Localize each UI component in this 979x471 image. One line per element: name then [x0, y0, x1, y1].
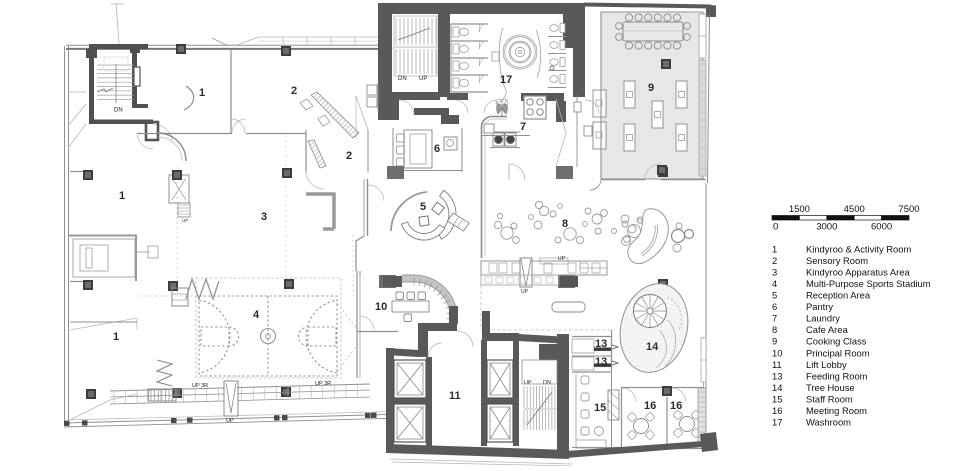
- svg-text:UP: UP: [521, 289, 529, 295]
- svg-text:Pantry: Pantry: [806, 301, 833, 312]
- svg-text:7500: 7500: [898, 204, 919, 215]
- svg-text:Lift Lobby: Lift Lobby: [806, 359, 847, 370]
- svg-text:DN: DN: [543, 380, 551, 386]
- svg-text:UP 3R: UP 3R: [192, 383, 208, 389]
- svg-text:8: 8: [772, 324, 777, 335]
- svg-text:15: 15: [594, 402, 606, 414]
- svg-text:DN: DN: [398, 76, 407, 82]
- svg-text:Principal Room: Principal Room: [806, 347, 870, 358]
- svg-text:DN: DN: [114, 108, 123, 114]
- svg-text:5: 5: [772, 290, 777, 301]
- svg-text:0: 0: [773, 222, 778, 233]
- svg-text:14: 14: [772, 382, 782, 393]
- svg-text:3: 3: [772, 267, 777, 278]
- svg-text:Feeding Room: Feeding Room: [806, 370, 868, 381]
- svg-text:3000: 3000: [816, 222, 837, 233]
- svg-text:9: 9: [648, 82, 654, 94]
- svg-text:16: 16: [772, 405, 782, 416]
- svg-text:10: 10: [772, 347, 782, 358]
- svg-text:16: 16: [644, 400, 656, 412]
- svg-text:16: 16: [670, 400, 682, 412]
- svg-text:6000: 6000: [871, 222, 892, 233]
- svg-text:14: 14: [646, 341, 659, 353]
- svg-text:UP: UP: [558, 256, 566, 262]
- svg-text:4: 4: [253, 309, 260, 321]
- svg-text:11: 11: [772, 359, 782, 370]
- svg-text:Staff Room: Staff Room: [806, 393, 853, 404]
- svg-text:2: 2: [772, 255, 777, 266]
- svg-text:1: 1: [119, 190, 125, 202]
- svg-text:Kindyroo Apparatus Area: Kindyroo Apparatus Area: [806, 267, 910, 278]
- svg-text:Sensory Room: Sensory Room: [806, 255, 868, 266]
- svg-text:10: 10: [375, 301, 387, 313]
- svg-text:UP: UP: [524, 380, 532, 386]
- svg-text:6: 6: [772, 301, 777, 312]
- svg-text:9: 9: [772, 336, 777, 347]
- svg-text:1500: 1500: [789, 204, 810, 215]
- svg-text:8: 8: [562, 218, 568, 230]
- svg-text:5: 5: [420, 201, 426, 213]
- svg-text:Cooking Class: Cooking Class: [806, 336, 867, 347]
- svg-text:Laundry: Laundry: [806, 313, 840, 324]
- svg-text:UP: UP: [226, 418, 234, 424]
- svg-text:2: 2: [346, 150, 352, 162]
- svg-text:Kindyroo & Activity Room: Kindyroo & Activity Room: [806, 244, 911, 255]
- svg-text:7: 7: [520, 121, 526, 133]
- svg-text:13: 13: [772, 370, 782, 381]
- svg-text:7: 7: [772, 313, 777, 324]
- svg-text:Reception Area: Reception Area: [806, 290, 871, 301]
- svg-text:UP 3R: UP 3R: [315, 381, 331, 387]
- svg-text:17: 17: [772, 416, 782, 427]
- svg-text:4: 4: [772, 278, 777, 289]
- svg-text:Multi-Purpose Sports Stadium: Multi-Purpose Sports Stadium: [806, 278, 931, 289]
- svg-text:13: 13: [595, 338, 607, 350]
- svg-text:Cafe Area: Cafe Area: [806, 324, 848, 335]
- svg-text:11: 11: [449, 390, 461, 402]
- svg-text:Meeting Room: Meeting Room: [806, 405, 867, 416]
- svg-text:UP: UP: [419, 76, 427, 82]
- svg-text:1: 1: [113, 331, 119, 343]
- svg-text:4500: 4500: [844, 204, 865, 215]
- svg-text:6: 6: [434, 143, 440, 155]
- svg-text:UP: UP: [182, 218, 188, 223]
- svg-text:13: 13: [595, 356, 607, 368]
- svg-text:3: 3: [261, 211, 267, 223]
- svg-text:17: 17: [500, 74, 512, 86]
- svg-text:1: 1: [199, 87, 205, 99]
- svg-text:Tree House: Tree House: [806, 382, 855, 393]
- svg-text:15: 15: [772, 393, 782, 404]
- svg-text:1: 1: [772, 244, 777, 255]
- svg-text:2: 2: [291, 85, 297, 97]
- svg-text:Washroom: Washroom: [806, 416, 851, 427]
